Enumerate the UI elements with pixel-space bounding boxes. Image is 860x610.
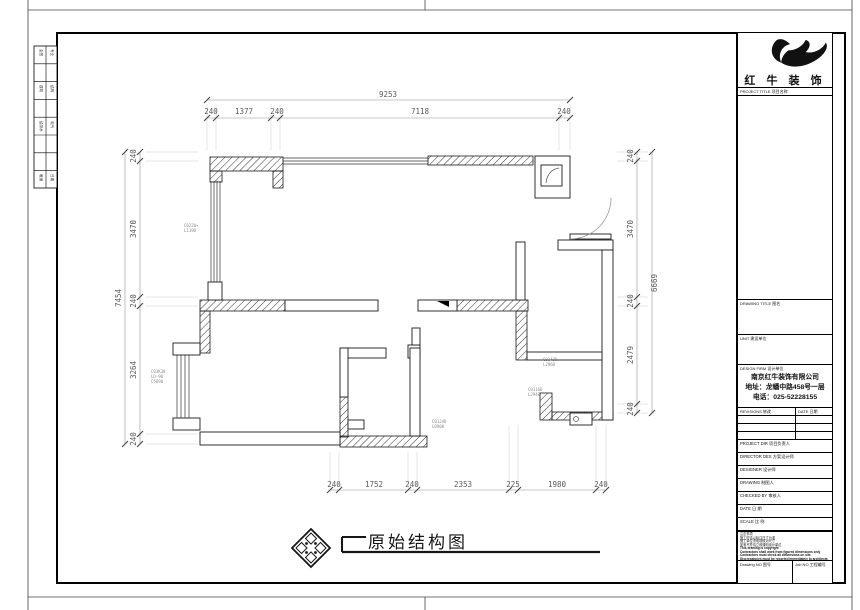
dim-label: 240: [270, 107, 284, 116]
annotation: L1190: [184, 228, 197, 233]
dim-label: 9253: [379, 90, 397, 99]
drawing-title-box: DRAWING TITLE 图名: [738, 300, 832, 335]
plan-annotations: C0220+ L1190 C03K30 LD-90 C5690 C0143D L…: [151, 223, 558, 429]
strip-cell: 会签: [39, 49, 44, 57]
dimension-top: 9253 240 1377 240 7118 240: [204, 90, 573, 121]
strip-cell: 电气: [50, 121, 55, 129]
entry-door: [570, 198, 611, 239]
drawing-sheet: { "sheet": { "bottom_title": "原始结构图", "b…: [0, 0, 860, 610]
dim-label: 7118: [411, 107, 430, 116]
dim-label: 1377: [235, 107, 253, 116]
dim-label: 3264: [129, 360, 138, 379]
logo-box: 红 牛 装 饰: [738, 33, 832, 88]
strip-cell: 建筑: [39, 85, 44, 93]
drawing-no-label: Drawing NO 图号: [738, 561, 793, 583]
rosette-icon: [292, 529, 330, 567]
notes-box: 注意事项 施工时请以标注尺寸为准 施工单位须现场核对尺寸 如有不符请立即通知设计…: [738, 531, 832, 561]
scale-row: SCALE 比 例: [738, 518, 832, 531]
annotation: L2940: [528, 392, 541, 397]
project-title-box: [738, 96, 832, 300]
job-no-label: Job NO 工程编号: [793, 561, 826, 583]
checked-by-row: CHECKED BY 审核人: [738, 492, 832, 505]
rednbull-logo-icon: [762, 35, 832, 71]
dim-label: 240: [626, 149, 635, 163]
dim-label: 240: [626, 294, 635, 308]
dim-label: 1752: [365, 480, 383, 489]
drawing-title-group: 原始结构图: [292, 529, 600, 567]
strip-cell: 日期: [50, 174, 55, 182]
unit-box: UNIT 建设单位: [738, 335, 832, 365]
dim-label: 2479: [626, 346, 635, 364]
signature-strip: 会签 专业 建筑 结构 给排水 电气 暖通 日期: [34, 46, 57, 188]
date-row: DATE 日 期: [738, 505, 832, 518]
dim-label: 240: [204, 107, 218, 116]
company-address: 地址：龙蟠中路458号一层: [738, 383, 832, 393]
dim-label: 2353: [454, 480, 472, 489]
dim-label: 240: [594, 480, 608, 489]
dim-label: 240: [129, 432, 138, 446]
dim-label: 1980: [548, 480, 567, 489]
ids-row: Drawing NO 图号 Job NO 工程编号: [738, 561, 832, 583]
designer-row: DESIGNER 设计师: [738, 466, 832, 479]
project-title-label: PROJECT TITLE 项目名称: [738, 88, 832, 96]
director-des-row: DIRECTOR DES 方案设计师: [738, 453, 832, 466]
dim-label: 240: [626, 402, 635, 416]
project-dir-row: PROJECT DIR 项目负责人: [738, 440, 832, 453]
revision-row: [738, 416, 832, 424]
dim-label: 225: [506, 480, 520, 489]
dim-label: 7454: [114, 288, 123, 307]
dimension-right: 6669 240 3470 240 2479 240: [626, 149, 659, 416]
title-block: 红 牛 装 饰 PROJECT TITLE 项目名称 DRAWING TITLE…: [736, 33, 833, 583]
drawing-title-text: 原始结构图: [368, 533, 468, 552]
design-firm-label: DESIGN FIRM 设计单位: [738, 365, 832, 371]
strip-cell: 暖通: [39, 174, 44, 182]
dim-label: 240: [405, 480, 419, 489]
date-col-label: DATE 日期: [796, 408, 832, 415]
dim-label: 240: [327, 480, 341, 489]
dim-label: 240: [557, 107, 571, 116]
annotation: C5690: [151, 379, 164, 384]
structural-walls: [200, 156, 613, 447]
floor-plan: [173, 156, 613, 447]
company-name: 南京红牛装饰有限公司: [738, 373, 832, 383]
unit-label: UNIT 建设单位: [738, 335, 832, 341]
company-phone: 电话：025-52228155: [738, 393, 832, 403]
revisions-header-row: REVISIONS 修改 DATE 日期: [738, 408, 832, 416]
revision-row: [738, 432, 832, 440]
sheet-canvas: 会签 专业 建筑 结构 给排水 电气 暖通 日期: [0, 0, 860, 610]
revision-row: [738, 424, 832, 432]
annotation: L2960: [543, 362, 556, 367]
dimension-bottom: 240 1752 240 2353 225 1980 240: [327, 480, 609, 493]
door-swing-arc: [570, 198, 611, 239]
revisions-label: REVISIONS 修改: [738, 408, 796, 415]
strip-cell: 专业: [50, 49, 55, 57]
dim-label: 3470: [129, 219, 138, 238]
annotation: L0900: [432, 424, 445, 429]
drawing-row: DRAWING 制图人: [738, 479, 832, 492]
brand-name: 红 牛 装 饰: [738, 72, 832, 88]
dim-label: 240: [129, 294, 138, 308]
dim-label: 240: [129, 149, 138, 163]
strip-cell: 给排水: [39, 121, 44, 132]
dimension-left: 7454 240 3470 240 3264 240: [114, 149, 143, 447]
strip-cell: 结构: [50, 85, 55, 93]
drawing-title-label: DRAWING TITLE 图名: [738, 300, 832, 306]
design-firm-box: DESIGN FIRM 设计单位 南京红牛装饰有限公司 地址：龙蟠中路458号一…: [738, 365, 832, 408]
dim-label: 3470: [626, 219, 635, 238]
dim-label: 6669: [650, 274, 659, 292]
